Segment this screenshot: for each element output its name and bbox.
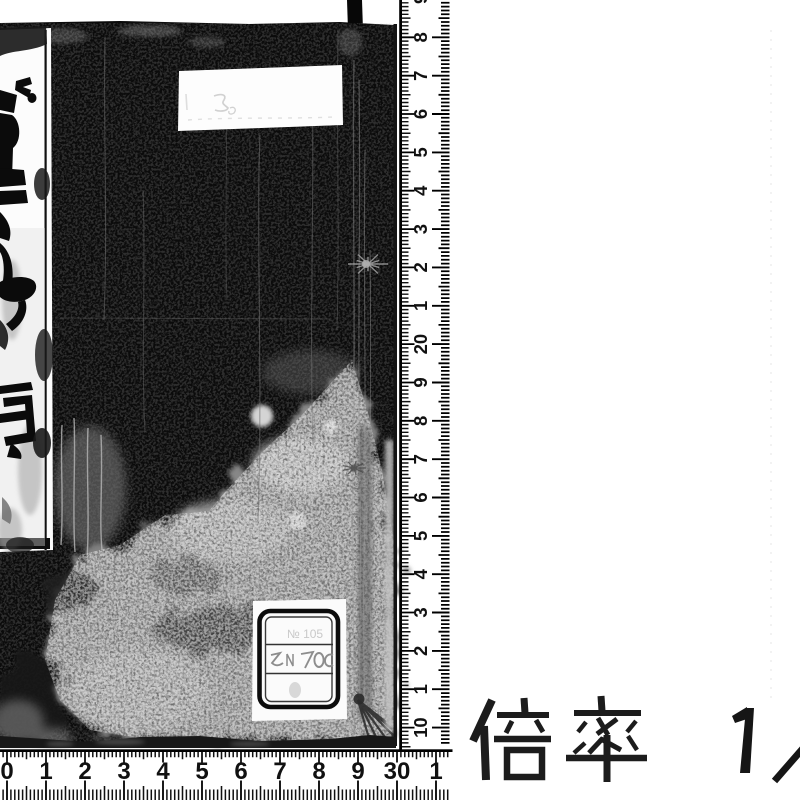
svg-text:1: 1 [410, 684, 431, 694]
svg-text:2: 2 [410, 262, 431, 272]
svg-text:7: 7 [410, 71, 431, 81]
svg-text:10: 10 [410, 717, 431, 738]
svg-text:№ 105: № 105 [287, 627, 324, 641]
svg-text:9: 9 [410, 0, 431, 4]
svg-text:4: 4 [410, 568, 431, 579]
svg-text:5: 5 [410, 531, 431, 541]
svg-text:9: 9 [410, 377, 431, 387]
svg-text:3: 3 [410, 224, 431, 234]
svg-text:8: 8 [410, 32, 431, 42]
svg-text:3: 3 [410, 607, 431, 617]
svg-text:20: 20 [410, 334, 431, 355]
svg-text:1: 1 [410, 301, 431, 311]
svg-text:4: 4 [410, 185, 431, 196]
svg-text:2: 2 [410, 646, 431, 656]
svg-text:6: 6 [410, 492, 431, 502]
svg-text:7: 7 [410, 454, 431, 464]
svg-text:5: 5 [410, 147, 431, 157]
svg-text:6: 6 [410, 109, 431, 119]
svg-text:8: 8 [410, 416, 431, 426]
